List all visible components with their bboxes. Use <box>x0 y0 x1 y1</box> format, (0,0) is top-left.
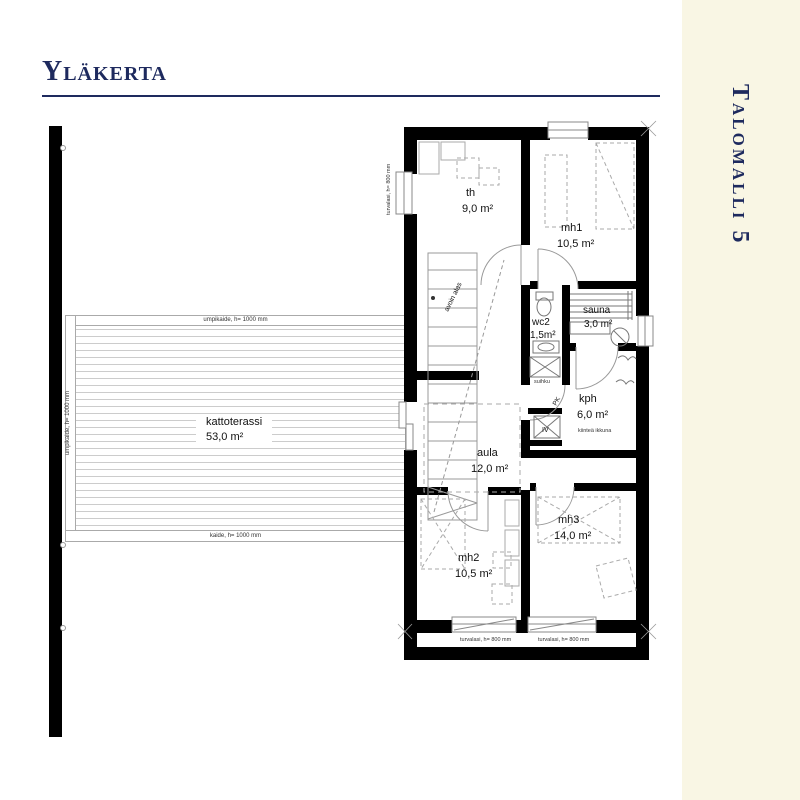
room-area-mh2: 10,5 m² <box>455 568 493 580</box>
note-fixed-window: kiinteä ikkuna <box>578 428 612 434</box>
room-label-mh3: mh3 <box>558 514 579 526</box>
note-window-bottom-left: turvalasi, h= 800 mm <box>460 637 512 643</box>
room-label-aula: aula <box>477 447 499 459</box>
room-area-th: 9,0 m² <box>462 203 494 215</box>
room-label-th: th <box>466 187 475 199</box>
note-washing-machine: PK <box>552 395 563 407</box>
room-label-sauna: sauna <box>583 305 611 316</box>
floor-plan-drawing: th 9,0 m² mh1 10,5 m² wc2 1,5m² sauna 3,… <box>0 0 800 800</box>
room-label-wc2: wc2 <box>531 317 550 328</box>
room-area-wc2: 1,5m² <box>530 330 556 341</box>
note-window-bottom-right: turvalasi, h= 800 mm <box>538 637 590 643</box>
note-window-left: turvalasi, h= 800 mm <box>386 163 392 215</box>
room-label-mh1: mh1 <box>561 222 582 234</box>
room-area-aula: 12,0 m² <box>471 463 509 475</box>
room-area-mh1: 10,5 m² <box>557 238 595 250</box>
room-area-kph: 6,0 m² <box>577 409 609 421</box>
room-area-sauna: 3,0 m² <box>584 319 613 330</box>
walls <box>49 126 649 737</box>
room-area-mh3: 14,0 m² <box>554 530 592 542</box>
room-label-kph: kph <box>579 393 597 405</box>
brochure-page: Talomalli 5 Yläkerta umpikaide, h= 1000 … <box>0 0 800 800</box>
room-label-mh2: mh2 <box>458 552 479 564</box>
staircase <box>428 253 504 520</box>
note-shower: suihku <box>534 379 550 385</box>
note-ventilation: IV <box>542 427 549 434</box>
